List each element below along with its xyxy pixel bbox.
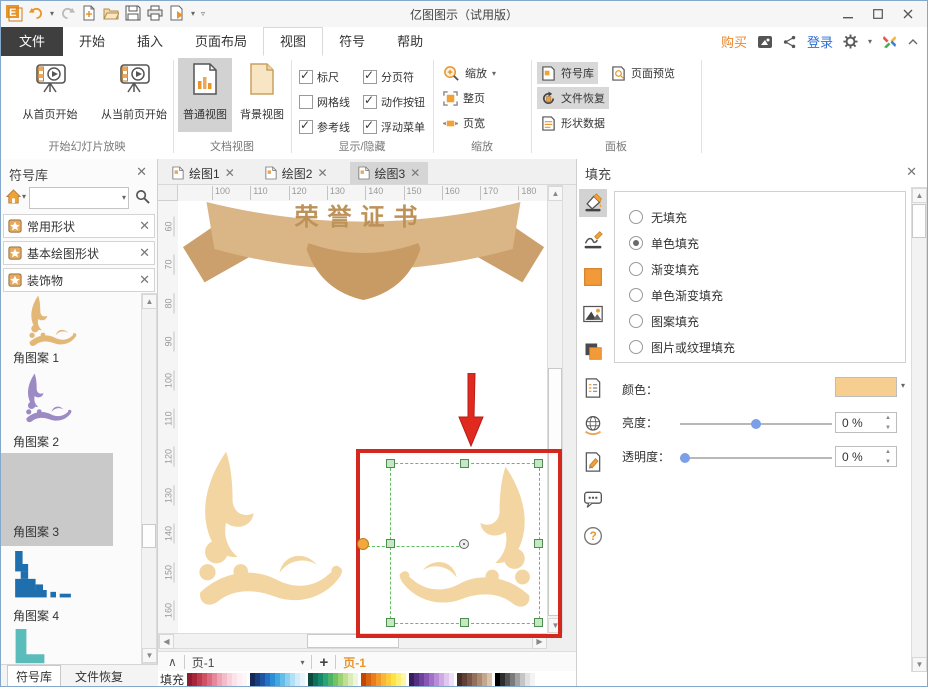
add-page-button[interactable]: + (319, 654, 328, 671)
quick-access-toolbar: ▾ ▾ ▿ (5, 4, 205, 22)
close-panel-icon[interactable]: ✕ (136, 164, 147, 180)
search-icon[interactable] (135, 189, 150, 204)
print-icon[interactable] (147, 5, 163, 21)
brightness-value[interactable]: 0 % ▲▼ (835, 412, 897, 433)
color-square-icon[interactable] (579, 263, 607, 291)
selection-control-point[interactable] (357, 538, 369, 550)
collapse-ribbon-icon[interactable] (907, 36, 919, 48)
selection-center-pin[interactable] (459, 539, 469, 549)
scrollbar-thumb[interactable] (142, 524, 156, 548)
symbol-library-icon (541, 66, 556, 81)
fill-option-图案填充[interactable]: 图案填充 (629, 308, 905, 334)
tab-符号[interactable]: 符号 (323, 27, 381, 56)
ribbon-tab-row: 文件 开始插入页面布局视图符号帮助 购买 登录 ▾ (1, 27, 927, 57)
panel-scrollbar[interactable]: ▲ ▼ (911, 187, 927, 672)
color-swatch[interactable] (401, 673, 406, 687)
symbol-library-button[interactable]: 符号库 (537, 62, 598, 84)
scrollbar-thumb[interactable] (912, 204, 926, 238)
panel-title: 填充 (585, 164, 611, 183)
bottom-tab-symbol-library[interactable]: 符号库 (7, 665, 61, 687)
color-swatch[interactable] (353, 673, 358, 687)
radio-icon[interactable] (629, 340, 643, 354)
fill-option-图片或纹理填充[interactable]: 图片或纹理填充 (629, 334, 905, 360)
list-item[interactable] (11, 373, 83, 430)
selection-handle[interactable] (386, 539, 395, 548)
corner-ornament-1-thumbnail (9, 295, 93, 351)
list-item[interactable] (9, 295, 93, 354)
brightness-label: 亮度： (622, 414, 658, 431)
selection-handle[interactable] (534, 459, 543, 468)
canvas-area: 绘图1✕绘图2✕绘图3✕ 100110120130140150160170180… (158, 159, 576, 687)
section-常用形状[interactable]: 常用形状✕ (3, 214, 155, 238)
new-document-icon[interactable] (81, 5, 97, 21)
shape-notes-icon[interactable] (579, 374, 607, 402)
page-icon (358, 166, 370, 180)
page-icon (265, 166, 277, 180)
corner-ornament-4-thumbnail (11, 551, 75, 603)
color-palette (187, 673, 538, 687)
annotation-arrow (458, 373, 484, 447)
checkbox-icon[interactable] (299, 95, 313, 109)
checkbox-网格线[interactable]: 网格线 (299, 89, 363, 114)
collapse-pages-icon[interactable]: ∧ (168, 655, 177, 669)
star-icon (8, 219, 22, 233)
page-preview-icon (611, 66, 626, 81)
fill-option-无填充[interactable]: 无填充 (629, 204, 905, 230)
tab-视图[interactable]: 视图 (263, 27, 323, 56)
page-navigation-bar: ∧ 页-1 ▾ + 页-1 (158, 651, 576, 672)
document-tab[interactable]: 绘图1✕ (164, 162, 243, 184)
undo-dropdown-icon[interactable]: ▾ (50, 9, 54, 18)
fill-option-单色填充[interactable]: 单色填充 (629, 230, 905, 256)
spinner-icons[interactable]: ▲▼ (882, 413, 894, 433)
fill-strip-label: 填充 (160, 671, 184, 687)
group-label-panel: 面板 (531, 138, 701, 153)
scroll-left-icon[interactable]: ◀ (159, 634, 174, 649)
corner-ornament-2-thumbnail (11, 373, 83, 427)
symbol-list: 角图案 1 角图案 2 角图案 3 角图案 4 (1, 293, 141, 664)
scroll-down-icon[interactable]: ▼ (142, 648, 157, 663)
page-width-button[interactable]: 页宽 (439, 112, 489, 134)
close-tab-icon[interactable]: ✕ (225, 166, 235, 180)
redo-icon[interactable] (60, 6, 75, 21)
page-icon (172, 166, 184, 180)
symbol-search-input[interactable]: ▾ (29, 187, 129, 209)
layers-icon[interactable] (579, 337, 607, 365)
list-item-selected[interactable]: 角图案 3 (1, 453, 113, 546)
shape-data-button[interactable]: 形状数据 (537, 112, 609, 134)
close-section-icon[interactable]: ✕ (139, 245, 150, 261)
checkbox-icon[interactable] (299, 70, 313, 84)
radio-icon[interactable] (629, 210, 643, 224)
radio-icon[interactable] (629, 314, 643, 328)
color-swatch[interactable] (300, 673, 305, 687)
zoom-button[interactable]: 缩放▾ (439, 62, 500, 84)
buy-button[interactable]: 购买 (721, 32, 747, 51)
home-dropdown-icon[interactable]: ▾ (22, 192, 26, 201)
tab-帮助[interactable]: 帮助 (381, 27, 439, 56)
page-dropdown-icon[interactable]: ▾ (300, 658, 304, 667)
export-dropdown-icon[interactable]: ▾ (191, 9, 195, 18)
selection-handle[interactable] (386, 618, 395, 627)
group-label-slideshow: 开始幻灯片放映 (1, 138, 173, 153)
projector-icon (32, 63, 68, 93)
corner-ornament-bottom-left[interactable] (184, 441, 346, 629)
radio-icon[interactable] (629, 262, 643, 276)
checkbox-icon[interactable] (299, 120, 313, 134)
list-item[interactable] (11, 551, 75, 606)
fit-page-icon (443, 91, 458, 106)
selection-handle[interactable] (460, 459, 469, 468)
horizontal-ruler: 100110120130140150160170180190 (178, 185, 547, 202)
fill-color-swatch[interactable] (835, 377, 897, 397)
open-folder-icon[interactable] (103, 5, 119, 21)
checkbox-标尺[interactable]: 标尺 (299, 64, 363, 89)
group-label-showhide: 显示/隐藏 (291, 138, 433, 153)
page-preview-button[interactable]: 页面预览 (607, 62, 679, 84)
fill-bucket-icon[interactable] (579, 189, 607, 217)
selection-handle[interactable] (534, 539, 543, 548)
start-from-first-page-button[interactable]: 从首页开始 (5, 58, 95, 132)
selection-handle[interactable] (460, 618, 469, 627)
radio-icon[interactable] (629, 288, 643, 302)
fill-panel: 填充 ✕ 无填充单色填充渐变填充单色渐变填充图案填充图片或纹理填充 颜色： ▾ … (576, 159, 928, 687)
list-item[interactable] (11, 629, 49, 664)
undo-icon[interactable] (29, 6, 44, 21)
close-button[interactable] (893, 1, 923, 25)
sidebar-bottom-tabs: 符号库 文件恢复 (1, 664, 158, 687)
zoom-icon (443, 65, 460, 82)
group-label-zoom: 缩放 (433, 138, 531, 153)
checkbox-icon[interactable] (363, 95, 377, 109)
color-dropdown-icon[interactable]: ▾ (901, 381, 905, 390)
color-swatch[interactable] (242, 673, 247, 687)
color-label: 颜色： (622, 381, 658, 398)
color-swatch[interactable] (530, 673, 535, 687)
transparency-value[interactable]: 0 % ▲▼ (835, 446, 897, 467)
login-button[interactable]: 登录 (807, 32, 833, 51)
maximize-button[interactable] (863, 1, 893, 25)
section-基本绘图形状[interactable]: 基本绘图形状✕ (3, 241, 155, 265)
hyperlink-globe-icon[interactable] (579, 411, 607, 439)
transparency-slider-thumb[interactable] (680, 453, 690, 463)
fill-option-渐变填充[interactable]: 渐变填充 (629, 256, 905, 282)
settings-dropdown-icon[interactable]: ▾ (868, 37, 872, 46)
corner-ornament-5-thumbnail (11, 629, 49, 664)
page-width-icon (443, 116, 458, 131)
titlebar: ▾ ▾ ▿ 亿图图示（试用版） (1, 1, 927, 28)
page-tab-active[interactable]: 页-1 (343, 654, 366, 671)
fill-option-单色渐变填充[interactable]: 单色渐变填充 (629, 282, 905, 308)
menu-tabs: 开始插入页面布局视图符号帮助 (63, 27, 439, 56)
tab-file[interactable]: 文件 (1, 27, 63, 56)
fill-options-box: 无填充单色填充渐变填充单色渐变填充图案填充图片或纹理填充 (614, 191, 906, 363)
picture-icon[interactable] (579, 300, 607, 328)
start-from-current-page-button[interactable]: 从当前页开始 (95, 58, 173, 132)
scroll-up-icon[interactable]: ▲ (142, 294, 157, 309)
projector-icon (116, 63, 152, 93)
document-tab[interactable]: 绘图2✕ (257, 162, 336, 184)
save-icon[interactable] (125, 5, 141, 21)
help-icon[interactable] (579, 522, 607, 550)
ruler-corner (158, 185, 178, 201)
bottom-tab-file-recovery[interactable]: 文件恢复 (67, 666, 131, 687)
scroll-down-icon[interactable]: ▼ (912, 657, 927, 672)
document-tabs: 绘图1✕绘图2✕绘图3✕ (158, 159, 576, 185)
close-tab-icon[interactable]: ✕ (317, 166, 327, 180)
background-view-button[interactable]: 背景视图 (235, 58, 289, 132)
brightness-slider-thumb[interactable] (751, 419, 761, 429)
line-style-icon[interactable] (579, 226, 607, 254)
close-tab-icon[interactable]: ✕ (410, 166, 420, 180)
checkbox-参考线[interactable]: 参考线 (299, 114, 363, 139)
transparency-slider[interactable] (680, 457, 832, 459)
document-plain-icon (249, 63, 275, 95)
close-section-icon[interactable]: ✕ (139, 272, 150, 288)
fill-panel-tools (579, 189, 609, 559)
document-tab[interactable]: 绘图3✕ (350, 162, 429, 184)
edraw-community-icon[interactable] (882, 34, 897, 49)
selection-handle[interactable] (534, 618, 543, 627)
star-icon (8, 273, 22, 287)
star-icon (8, 246, 22, 260)
comment-icon[interactable] (579, 485, 607, 513)
edraw-logo-icon (5, 4, 23, 22)
edraw-window: ▾ ▾ ▿ 亿图图示（试用版） 文件 开始插入页面布局视图符号帮助 购买 登录 … (0, 0, 928, 687)
close-panel-icon[interactable]: ✕ (906, 164, 917, 180)
shape-data-icon (541, 116, 556, 131)
home-icon[interactable] (6, 189, 21, 204)
tab-插入[interactable]: 插入 (121, 27, 179, 56)
search-dropdown-icon[interactable]: ▾ (122, 193, 126, 202)
group-label-docview: 文档视图 (173, 138, 291, 153)
normal-view-button[interactable]: 普通视图 (178, 58, 232, 132)
whole-page-button[interactable]: 整页 (439, 87, 489, 109)
showhide-grid: 标尺分页符网格线动作按钮参考线浮动菜单 (299, 64, 445, 139)
customize-toolbar-icon[interactable]: ▿ (201, 9, 205, 18)
panel-title: 符号库 (9, 165, 48, 184)
scroll-up-icon[interactable]: ▲ (548, 186, 563, 201)
color-swatch[interactable] (449, 673, 454, 687)
tab-开始[interactable]: 开始 (63, 27, 121, 56)
quick-fill-bar: 填充 (158, 671, 576, 687)
section-装饰物[interactable]: 装饰物✕ (3, 268, 155, 292)
close-section-icon[interactable]: ✕ (139, 218, 150, 234)
file-recovery-icon (541, 91, 556, 106)
share-image-icon[interactable] (757, 34, 773, 50)
gear-icon[interactable] (843, 34, 858, 49)
symbol-library-panel: 符号库 ✕ ▾ ▾ 常用形状✕基本绘图形状✕装饰物✕ 角图案 1 角图案 2 角… (1, 159, 158, 687)
spinner-icons[interactable]: ▲▼ (882, 447, 894, 467)
banner-title-text[interactable]: 荣誉证书 (178, 201, 543, 232)
document-chart-icon (192, 63, 218, 95)
ribbon: 从首页开始 从当前页开始 开始幻灯片放映 普通视图 背景视图 文档视图 标尺分页… (1, 56, 927, 160)
share-icon[interactable] (783, 35, 797, 49)
symbol-list-scrollbar[interactable]: ▲ ▼ (141, 293, 157, 664)
radio-icon[interactable] (629, 236, 643, 250)
transparency-label: 透明度： (622, 448, 670, 465)
checkbox-icon[interactable] (363, 70, 377, 84)
export-icon[interactable] (169, 5, 185, 21)
tab-页面布局[interactable]: 页面布局 (179, 27, 263, 56)
minimize-button[interactable] (833, 1, 863, 25)
scroll-up-icon[interactable]: ▲ (912, 188, 927, 203)
attachment-icon[interactable] (579, 448, 607, 476)
file-recovery-button[interactable]: 文件恢复 (537, 87, 609, 109)
vertical-ruler: 60708090100110120130140150160 (158, 201, 179, 633)
selection-handle[interactable] (386, 459, 395, 468)
color-swatch[interactable] (487, 673, 492, 687)
page-dropdown[interactable]: 页-1 (192, 654, 215, 671)
checkbox-icon[interactable] (363, 120, 377, 134)
brightness-slider[interactable] (680, 423, 832, 425)
selection-control-line (362, 546, 464, 547)
